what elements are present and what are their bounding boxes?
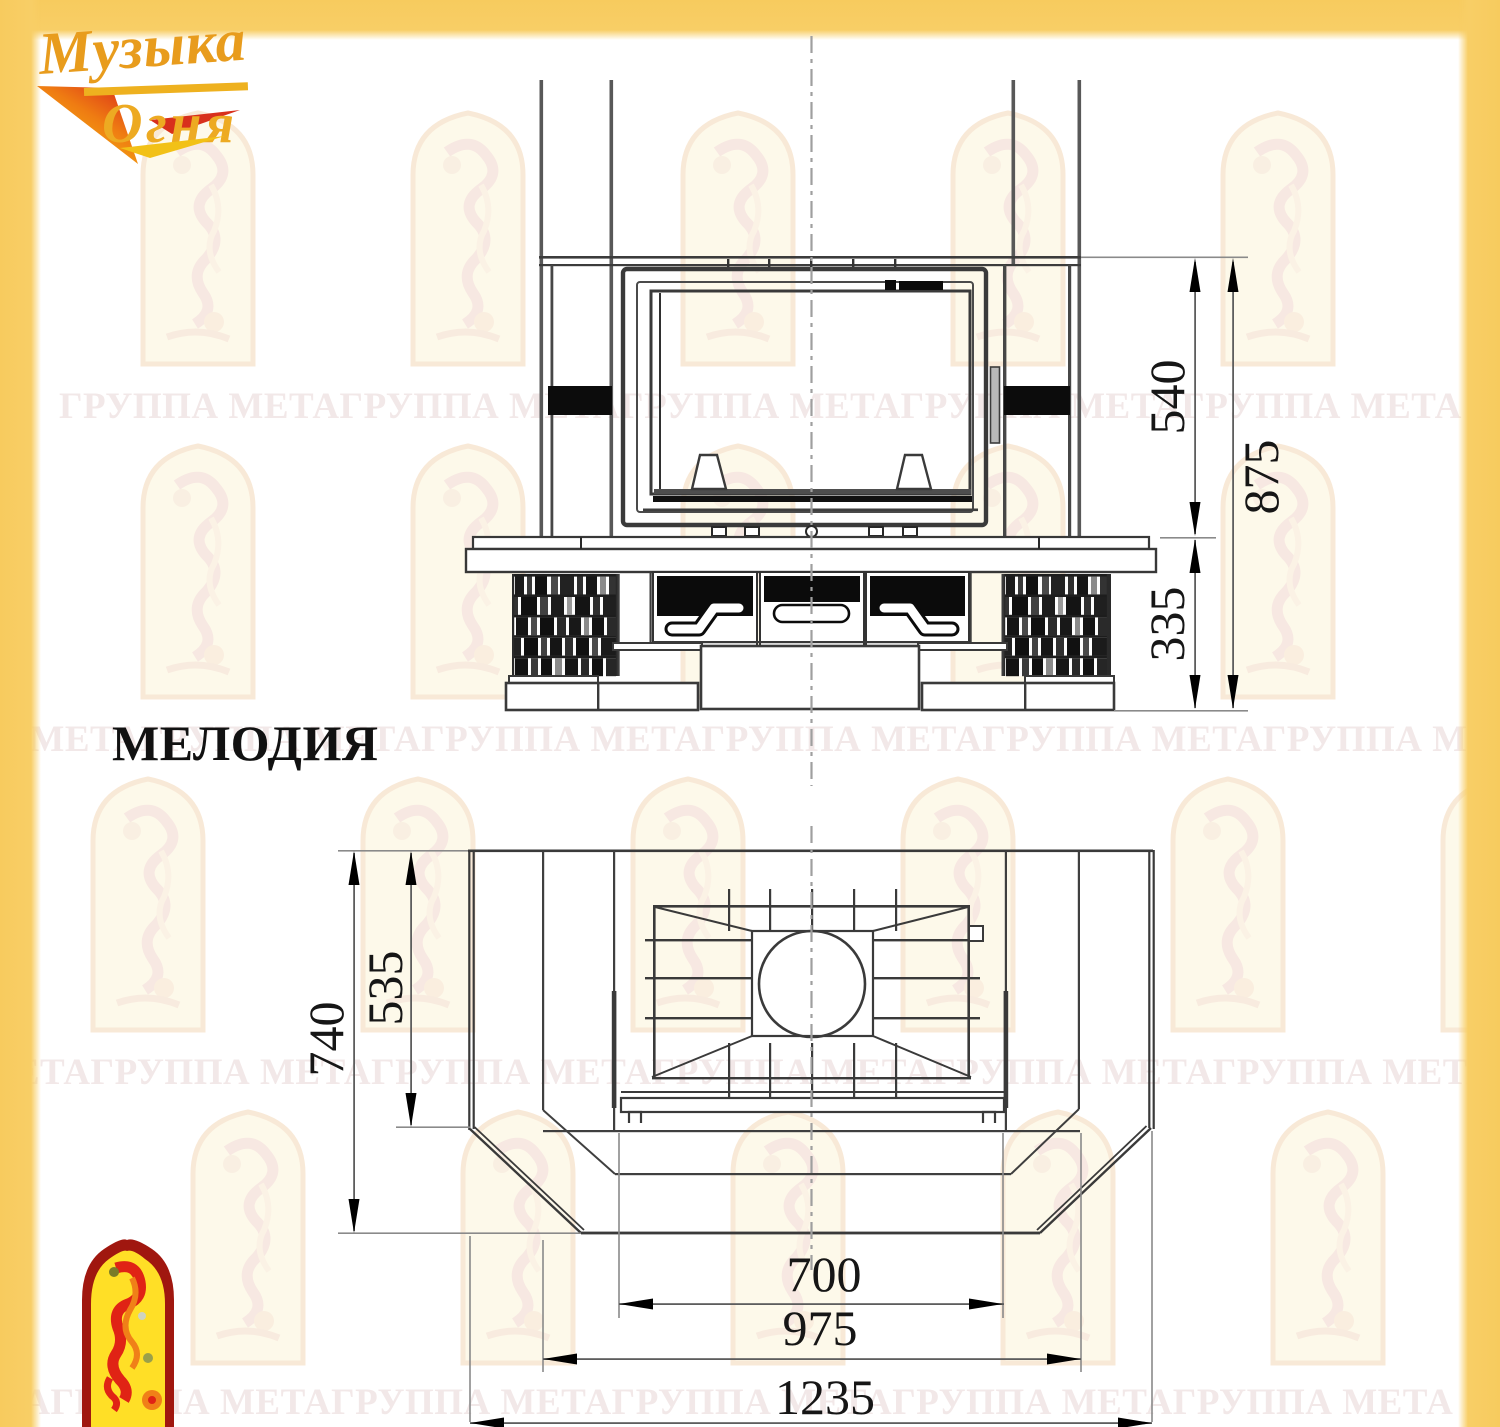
svg-text:1235: 1235 <box>775 1369 875 1425</box>
svg-text:535: 535 <box>357 951 413 1026</box>
svg-text:740: 740 <box>298 1002 354 1077</box>
svg-text:700: 700 <box>787 1246 862 1302</box>
svg-text:975: 975 <box>783 1300 858 1356</box>
svg-text:540: 540 <box>1139 360 1195 435</box>
svg-text:335: 335 <box>1139 587 1195 662</box>
svg-text:875: 875 <box>1233 440 1289 515</box>
svg-text:Музыка: Музыка <box>35 7 247 87</box>
